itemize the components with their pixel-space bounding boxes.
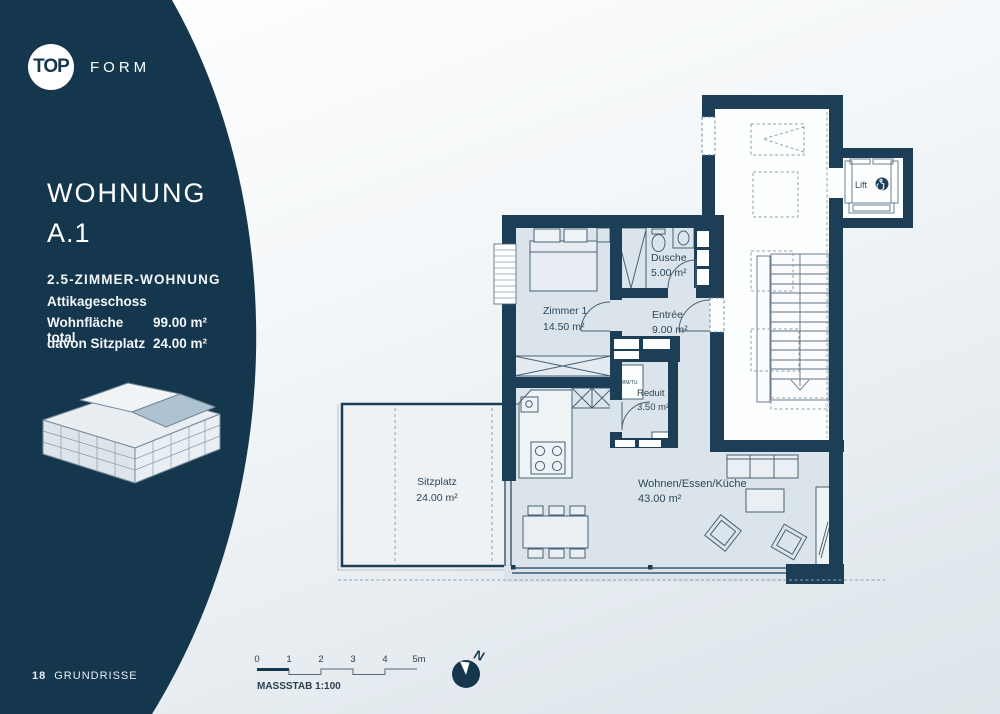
scale-tick-1: 1 (286, 654, 291, 665)
wall-zimmer-dusche (610, 215, 622, 300)
apartment-floor: Attikageschoss (47, 294, 147, 309)
wall-apartment-top (502, 215, 715, 228)
apartment-title: WOHNUNG (47, 178, 206, 209)
shaft-niche-1 (697, 231, 709, 247)
area-terrace-label: davon Sitzplatz (47, 336, 153, 351)
page-number: 18 (32, 670, 46, 682)
coffee-table (746, 489, 784, 512)
logo-form-text: FORM (90, 59, 150, 76)
sofa (727, 455, 798, 478)
lift-door-opening (829, 168, 843, 198)
area-terrace-value: 24.00 m² (153, 336, 207, 351)
label-reduit-area: 3.50 m² (637, 402, 669, 413)
logo-circle: TOP (28, 44, 74, 90)
sidebar: TOP FORM WOHNUNG A.1 2.5-ZIMMER-WOHNUNG … (0, 0, 270, 714)
label-zimmer1-area: 14.50 m² (543, 321, 585, 333)
wall-terrace-living (502, 385, 516, 481)
label-entree-area: 9.00 m² (652, 324, 688, 336)
window-post-2 (648, 565, 653, 570)
page-section: GRUNDRISSE (54, 670, 137, 682)
entrance-opening (710, 298, 724, 332)
floor-plan: Zimmer 1 14.50 m² Dusche 5.00 m² Entrée … (240, 80, 1000, 714)
wardrobe (514, 356, 611, 376)
label-dusche-area: 5.00 m² (651, 267, 687, 279)
reduit-shelf-1 (615, 440, 635, 447)
scale-tick-5: 5m (412, 654, 425, 665)
page-footer: 18GRUNDRISSE (32, 670, 138, 682)
label-dusche-name: Dusche (651, 252, 687, 264)
area-row-terrace: davon Sitzplatz 24.00 m² (47, 336, 247, 351)
wall-topblock-top (702, 95, 842, 109)
apartment-number: A.1 (47, 218, 91, 249)
scale-tick-2: 2 (318, 654, 323, 665)
label-entree-name: Entrée (652, 309, 683, 321)
bed (530, 229, 597, 291)
wall-zimmer-bottom (502, 377, 614, 388)
label-sitzplatz-area: 24.00 m² (416, 492, 458, 504)
lift-floor (841, 157, 904, 219)
scale-bar: 0 1 2 3 4 5m MASSSTAB 1:100 (254, 654, 425, 692)
scale-label: MASSSTAB 1:100 (257, 681, 341, 692)
kitchen-counter (513, 390, 572, 478)
reduit-shelf-2 (639, 440, 661, 447)
wall-topblock-left (702, 95, 715, 228)
dusche-door-opening (668, 288, 696, 298)
entree-cupboard-3 (614, 351, 639, 359)
label-wohnen-name: Wohnen/Essen/Küche (638, 478, 747, 490)
scale-tick-4: 4 (382, 654, 387, 665)
label-wohnen-area: 43.00 m² (638, 493, 682, 505)
wall-living-top (710, 440, 844, 452)
window-post-1 (511, 565, 516, 570)
dining-table (523, 506, 588, 558)
building-illustration (28, 366, 243, 491)
label-lift: Lift (855, 180, 868, 190)
shaft-niche-3 (697, 269, 709, 285)
brochure-page: TOP FORM WOHNUNG A.1 2.5-ZIMMER-WOHNUNG … (0, 0, 1000, 714)
wall-stairwell-left (710, 215, 724, 452)
entree-cupboard-2 (643, 339, 670, 349)
topblock-window-opening (702, 117, 715, 155)
wall-corner-bottom-right (786, 564, 844, 584)
logo-top-text: TOP (33, 56, 69, 78)
wall-lift-right (903, 148, 913, 228)
wall-lift-top (829, 148, 913, 158)
logo: TOP FORM (28, 44, 150, 90)
scale-tick-0: 0 (254, 654, 259, 665)
label-sitzplatz-name: Sitzplatz (417, 476, 457, 488)
bedroom-window (494, 244, 516, 304)
sideboard-tv (816, 487, 831, 568)
wheelchair-icon (876, 178, 889, 191)
north-compass: N (452, 647, 487, 688)
wall-lift-bottom (829, 218, 913, 228)
label-reduit-name: Reduit (637, 388, 665, 399)
zimmer-door-opening (610, 300, 622, 331)
scale-tick-3: 3 (350, 654, 355, 665)
shaft-niche-2 (697, 250, 709, 266)
scale-bar-line (289, 669, 417, 675)
north-label: N (472, 647, 487, 665)
label-zimmer1-name: Zimmer 1 (543, 305, 587, 317)
apartment-type: 2.5-ZIMMER-WOHNUNG (47, 272, 221, 287)
wall-reduit-right (668, 336, 678, 448)
entree-cupboard-1 (614, 339, 639, 349)
label-wm-tu: WM/TU (621, 380, 638, 386)
reduit-door-opening (610, 400, 622, 432)
